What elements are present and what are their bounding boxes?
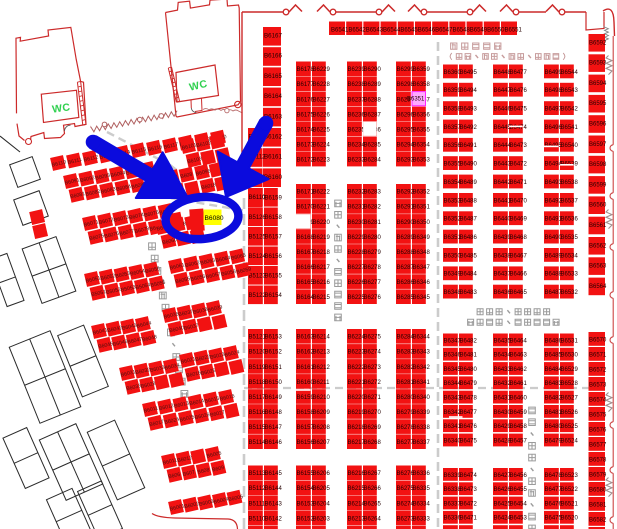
svg-text:B6527: B6527 [561,396,579,402]
svg-text:B6215: B6215 [313,295,331,301]
svg-text:B6203: B6203 [313,516,331,522]
svg-text:B6208: B6208 [313,425,331,431]
svg-text:B6148: B6148 [265,410,283,416]
svg-text:B6337: B6337 [413,440,431,446]
svg-text:B6576: B6576 [589,427,607,433]
svg-text:B6272: B6272 [364,380,382,386]
svg-text:B6080: B6080 [205,215,224,222]
svg-text:B6574: B6574 [589,397,607,403]
svg-text:B6205: B6205 [313,486,331,492]
svg-text:B6525: B6525 [561,424,579,430]
svg-text:B6470: B6470 [510,198,528,204]
svg-text:B6533: B6533 [561,272,579,278]
svg-text:B5112: B5112 [249,486,267,492]
svg-text:B6466: B6466 [510,272,528,278]
svg-text:B6142: B6142 [265,516,283,522]
svg-text:B6573: B6573 [589,382,607,388]
svg-text:B6221: B6221 [313,205,331,211]
svg-text:B6460: B6460 [510,396,528,402]
svg-text:B6277: B6277 [364,280,382,286]
svg-text:B6210: B6210 [313,395,331,401]
svg-text:B6492: B6492 [460,125,478,131]
svg-text:B6282: B6282 [364,205,382,211]
svg-text:B6151: B6151 [265,365,283,371]
svg-text:B6342: B6342 [413,365,431,371]
svg-text:WC: WC [51,101,71,115]
svg-text:B5110: B5110 [249,516,267,522]
svg-text:B6582: B6582 [589,517,607,523]
svg-text:B6274: B6274 [364,350,382,356]
svg-text:B6152: B6152 [265,350,283,356]
svg-text:B6155: B6155 [265,274,283,280]
svg-text:B6483: B6483 [460,290,478,296]
svg-text:B5114: B5114 [249,440,267,446]
svg-text:B6564: B6564 [589,284,607,290]
svg-text:B6532: B6532 [561,290,579,296]
svg-text:B6484: B6484 [460,272,478,278]
svg-text:B6467: B6467 [510,253,528,259]
svg-text:B6476: B6476 [460,424,478,430]
svg-text:B6273: B6273 [364,365,382,371]
svg-text:B6146: B6146 [265,440,283,446]
svg-text:B6541B6542B6543B6544B6545B6546: B6541B6542B6543B6544B6545B6546B6547B6548… [331,28,523,34]
svg-text:B6341: B6341 [413,380,431,386]
svg-text:B5111: B5111 [249,501,266,507]
svg-text:B6598: B6598 [589,162,607,168]
svg-text:B6216: B6216 [313,280,331,286]
svg-text:B6468: B6468 [510,235,528,241]
svg-text:B6224: B6224 [313,142,331,148]
svg-text:B6165: B6165 [264,73,282,80]
svg-text:B6472: B6472 [510,162,528,168]
svg-text:B6340: B6340 [413,395,431,401]
svg-text:B6473: B6473 [460,487,478,493]
svg-text:B6164: B6164 [264,93,282,100]
svg-text:B6493: B6493 [460,107,478,113]
svg-text:B6153: B6153 [265,335,283,341]
svg-text:B6226: B6226 [313,112,331,118]
svg-text:B6266: B6266 [364,486,382,492]
svg-text:B6479: B6479 [460,381,478,387]
svg-text:B6592: B6592 [589,40,607,46]
svg-text:B6490: B6490 [460,162,478,168]
svg-text:B6347: B6347 [413,265,431,271]
svg-text:B5119: B5119 [249,365,267,371]
svg-text:B6563: B6563 [589,264,607,270]
svg-text:B5116: B5116 [249,410,267,416]
svg-text:B6580: B6580 [589,487,607,493]
svg-text:B6593: B6593 [589,61,607,67]
svg-text:B6456: B6456 [510,473,528,479]
svg-text:B6228: B6228 [313,82,331,88]
svg-text:B6287: B6287 [364,112,382,118]
svg-text:B6351: B6351 [413,205,431,211]
svg-text:B6154: B6154 [265,293,283,299]
svg-text:B6333: B6333 [413,516,431,522]
svg-text:B6453: B6453 [510,516,528,522]
svg-text:B6572: B6572 [589,367,607,373]
svg-text:B6599: B6599 [589,182,607,188]
svg-text:B6463: B6463 [510,353,528,359]
svg-text:B6478: B6478 [460,396,478,402]
svg-text:B6495: B6495 [460,70,478,76]
svg-text:B6477: B6477 [510,70,528,76]
svg-text:B6461: B6461 [510,381,528,387]
svg-text:B6217: B6217 [313,265,331,271]
svg-text:B6352: B6352 [413,190,431,196]
svg-text:B6523: B6523 [561,473,579,479]
svg-text:B6597: B6597 [589,142,607,148]
svg-text:B6290: B6290 [364,67,382,73]
svg-text:B6358: B6358 [413,82,431,88]
svg-text:B6571: B6571 [589,352,607,358]
svg-text:B6485: B6485 [460,253,478,259]
svg-text:B6477: B6477 [460,410,478,416]
svg-text:B6561: B6561 [589,223,607,229]
svg-text:B6535: B6535 [561,235,579,241]
svg-text:B6577: B6577 [589,442,607,448]
svg-text:B6158: B6158 [265,215,283,221]
svg-text:B6353: B6353 [413,158,431,164]
svg-text:B6343: B6343 [413,350,431,356]
svg-text:B6540: B6540 [561,143,579,149]
svg-text:B6280: B6280 [364,235,382,241]
svg-text:B6204: B6204 [313,501,331,507]
svg-text:B5118: B5118 [249,380,267,386]
svg-text:B6159: B6159 [265,196,283,202]
svg-text:B6211: B6211 [313,380,331,386]
svg-text:B6482: B6482 [460,338,478,344]
svg-text:B6544: B6544 [561,70,579,76]
svg-text:B6350: B6350 [413,220,431,226]
svg-text:B6268: B6268 [364,440,382,446]
svg-text:B6457: B6457 [510,438,528,444]
svg-text:B6223: B6223 [313,158,331,164]
svg-text:B6264: B6264 [364,516,382,522]
svg-text:B6595: B6595 [589,101,607,107]
svg-text:B6529: B6529 [561,367,579,373]
svg-text:B6209: B6209 [313,410,331,416]
svg-text:B6570: B6570 [589,337,607,343]
svg-text:B6459: B6459 [510,410,528,416]
svg-text:B6476: B6476 [510,88,528,94]
svg-text:B6464: B6464 [510,338,528,344]
svg-text:B6335: B6335 [413,486,431,492]
svg-text:B5115: B5115 [249,425,267,431]
svg-text:B6560: B6560 [589,203,607,209]
svg-text:B6145: B6145 [265,471,283,477]
svg-text:B6469: B6469 [510,217,528,223]
svg-text:B6594: B6594 [589,81,607,87]
svg-text:B6219: B6219 [313,235,331,241]
svg-text:B6344: B6344 [413,335,431,341]
svg-text:B6338: B6338 [413,425,431,431]
svg-text:B6279: B6279 [364,250,382,256]
svg-text:B6161: B6161 [264,154,282,161]
svg-text:B6212: B6212 [313,365,331,371]
svg-text:B6285: B6285 [364,142,382,148]
svg-text:B6166: B6166 [264,53,282,60]
svg-text:B6355: B6355 [413,127,431,133]
svg-text:B6349: B6349 [413,235,431,241]
svg-text:B6489: B6489 [460,180,478,186]
svg-text:B6474: B6474 [460,473,478,479]
svg-text:B6473: B6473 [510,143,528,149]
svg-text:B6530: B6530 [561,353,579,359]
svg-text:B6462: B6462 [510,367,528,373]
svg-text:B6149: B6149 [265,395,283,401]
svg-text:B6275: B6275 [364,335,382,341]
svg-text:B6458: B6458 [510,424,528,430]
svg-text:B6271: B6271 [364,395,382,401]
svg-text:B5117: B5117 [249,395,267,401]
svg-text:B6537: B6537 [561,198,579,204]
svg-text:B6465: B6465 [510,290,528,296]
svg-text:B6213: B6213 [313,350,331,356]
svg-text:B6354: B6354 [413,142,431,148]
svg-text:B6471: B6471 [460,516,478,522]
svg-text:B6147: B6147 [265,425,283,431]
svg-text:B6541: B6541 [561,125,579,131]
svg-text:B6491: B6491 [460,143,478,149]
svg-text:B6229: B6229 [313,67,331,73]
svg-text:B6336: B6336 [413,471,431,477]
svg-text:B6356: B6356 [413,112,431,118]
svg-text:B6110: B6110 [249,195,267,201]
svg-text:B5113: B5113 [249,471,267,477]
svg-text:B6222: B6222 [313,190,331,196]
svg-text:B6284: B6284 [364,158,382,164]
svg-text:B6581: B6581 [589,502,607,508]
svg-text:B6339: B6339 [413,410,431,416]
svg-text:B6596: B6596 [589,122,607,128]
svg-text:B6207: B6207 [313,440,331,446]
svg-text:B6471: B6471 [510,180,528,186]
svg-text:B6218: B6218 [313,250,331,256]
svg-text:B6487: B6487 [460,217,478,223]
svg-text:B6206: B6206 [313,471,331,477]
svg-text:B6278: B6278 [364,265,382,271]
svg-text:B6281: B6281 [364,220,382,226]
svg-text:-B6351: -B6351 [405,97,425,103]
svg-text:B6265: B6265 [364,501,382,507]
svg-text:B6359: B6359 [413,67,431,73]
svg-text:B6214: B6214 [313,335,331,341]
svg-text:B6542: B6542 [561,107,579,113]
svg-text:B6475: B6475 [510,107,528,113]
svg-text:B6521: B6521 [561,501,579,507]
svg-text:B6475: B6475 [460,438,478,444]
svg-text:B6144: B6144 [265,486,283,492]
svg-text:B6156: B6156 [265,254,283,260]
svg-text:B6494: B6494 [460,88,478,94]
svg-text:B6267: B6267 [364,471,382,477]
svg-text:B6543: B6543 [561,88,579,94]
svg-text:B6269: B6269 [364,425,382,431]
svg-text:B6524: B6524 [561,438,579,444]
svg-text:B6288: B6288 [364,97,382,103]
svg-text:B6143: B6143 [265,501,283,507]
svg-text:B6455: B6455 [510,487,528,493]
svg-text:B6283: B6283 [364,190,382,196]
svg-text:B6220: B6220 [313,220,331,226]
svg-text:B6472: B6472 [460,501,478,507]
svg-text:B6481: B6481 [460,353,478,359]
svg-text:B6526: B6526 [561,410,579,416]
svg-text:B6480: B6480 [460,367,478,373]
svg-text:B6528: B6528 [561,381,579,387]
svg-text:B6289: B6289 [364,82,382,88]
svg-text:B6348: B6348 [413,250,431,256]
svg-text:B6345: B6345 [413,295,431,301]
svg-text:B6579: B6579 [589,472,607,478]
svg-text:B6454: B6454 [510,501,528,507]
svg-text:B6538: B6538 [561,180,579,186]
svg-text:B6167: B6167 [264,33,282,40]
svg-text:B6520: B6520 [561,516,579,522]
svg-text:B6225: B6225 [313,127,331,133]
svg-text:B6578: B6578 [589,457,607,463]
svg-text:B6488: B6488 [460,198,478,204]
svg-text:B6575: B6575 [589,412,607,418]
svg-text:B6150: B6150 [265,380,283,386]
svg-text:B6531: B6531 [561,338,579,344]
svg-text:B6334: B6334 [413,501,431,507]
svg-text:B6562: B6562 [589,243,607,249]
svg-text:B6346: B6346 [413,280,431,286]
svg-text:B6227: B6227 [313,97,331,103]
svg-text:B6522: B6522 [561,487,579,493]
svg-text:B6534: B6534 [561,253,579,259]
svg-text:B6536: B6536 [561,217,579,223]
svg-text:B6276: B6276 [364,295,382,301]
svg-text:B6270: B6270 [364,410,382,416]
svg-text:B6486: B6486 [460,235,478,241]
svg-text:B6157: B6157 [265,235,283,241]
